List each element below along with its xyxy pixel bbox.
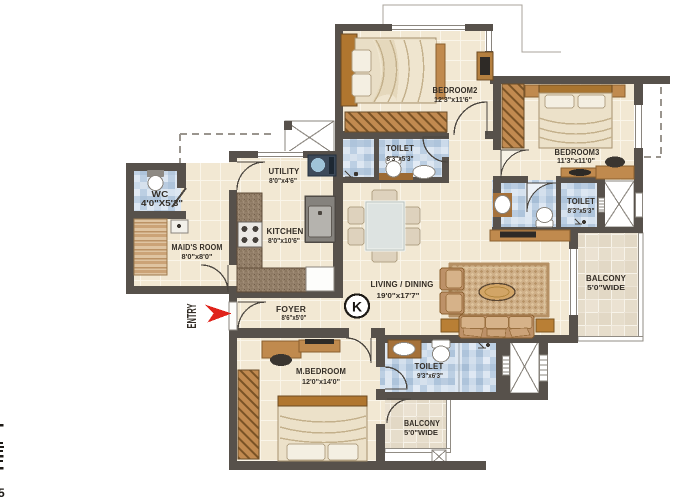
svg-text:TOILET: TOILET bbox=[386, 143, 414, 153]
svg-text:8'3"x5'3": 8'3"x5'3" bbox=[568, 206, 595, 215]
svg-text:BALCONY: BALCONY bbox=[586, 273, 626, 283]
svg-text:12'3"x11'6": 12'3"x11'6" bbox=[434, 95, 472, 104]
svg-text:BALCONY: BALCONY bbox=[404, 418, 440, 428]
svg-text:9'3"x6'3": 9'3"x6'3" bbox=[417, 371, 443, 380]
svg-text:5'0"WIDE: 5'0"WIDE bbox=[587, 283, 625, 292]
svg-text:19'0"x17'7": 19'0"x17'7" bbox=[377, 291, 420, 300]
svg-text:5'0"WIDE: 5'0"WIDE bbox=[404, 428, 438, 437]
svg-text:12'0"x14'0": 12'0"x14'0" bbox=[302, 377, 340, 386]
svg-text:ENTRY: ENTRY bbox=[185, 303, 199, 328]
svg-text:8'6"x5'0": 8'6"x5'0" bbox=[282, 313, 307, 322]
svg-text:MAID'S ROOM: MAID'S ROOM bbox=[172, 242, 223, 252]
svg-text:8'0"x8'0": 8'0"x8'0" bbox=[182, 252, 213, 261]
svg-text:UTILITY: UTILITY bbox=[269, 166, 300, 176]
svg-text:KITCHEN: KITCHEN bbox=[267, 226, 304, 236]
svg-text:5: 5 bbox=[0, 486, 5, 500]
svg-text:8'3"x5'3": 8'3"x5'3" bbox=[387, 154, 414, 163]
svg-text:BEDROOM2: BEDROOM2 bbox=[433, 85, 478, 95]
svg-text:TOILET: TOILET bbox=[567, 196, 595, 206]
svg-text:8'0"x4'6": 8'0"x4'6" bbox=[269, 176, 297, 185]
svg-text:4'0"X5'3": 4'0"X5'3" bbox=[141, 198, 183, 208]
svg-text:M.BEDROOM: M.BEDROOM bbox=[296, 366, 346, 376]
svg-text:TOILET: TOILET bbox=[415, 361, 444, 371]
svg-text:8'0"x10'6": 8'0"x10'6" bbox=[268, 236, 300, 245]
svg-text:11'3"x11'0": 11'3"x11'0" bbox=[557, 156, 595, 165]
svg-text:LIVING / DINING: LIVING / DINING bbox=[371, 279, 434, 289]
svg-text:K: K bbox=[352, 299, 362, 315]
